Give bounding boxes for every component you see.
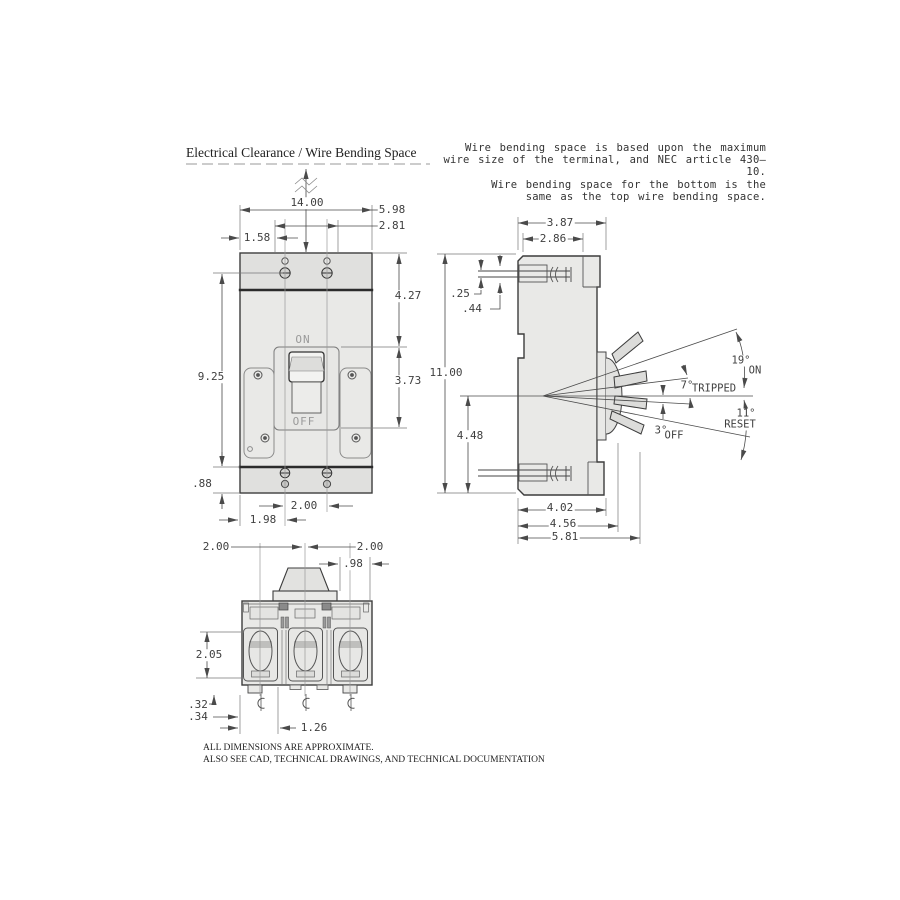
handle-on	[612, 332, 643, 363]
right-wing	[340, 368, 371, 458]
breaker-dimension-drawing: Electrical Clearance / Wire Bending Spac…	[0, 0, 900, 900]
bottom-view-body	[242, 568, 372, 693]
centerline-icon	[348, 694, 355, 711]
pole-terminal-windows	[244, 628, 368, 684]
dim-foot-height: .32	[187, 699, 209, 711]
dim-mounting-height: 9.25	[197, 371, 226, 383]
dim-clearance-top: 14.00	[289, 197, 324, 209]
dim-trim-depth: 4.56	[549, 518, 578, 530]
dim-overall-depth: 5.81	[551, 531, 580, 543]
dim-terminal-opening: .44	[461, 303, 483, 315]
angle-tripped-label: TRIPPED	[691, 383, 737, 394]
page-title: Electrical Clearance / Wire Bending Spac…	[186, 145, 416, 161]
dim-top-depth: 3.87	[546, 217, 575, 229]
dim-terminal-plate-gap: .25	[449, 288, 471, 300]
wire-bending-note: Wire bending space is based upon the max…	[425, 142, 766, 203]
dim-pole-spacing: 2.00	[290, 500, 319, 512]
dim-terminal-depth: 2.86	[539, 233, 568, 245]
dim-edge-to-pole: 1.98	[249, 514, 278, 526]
technical-drawing-linework	[0, 0, 900, 900]
note-line: same as the top wire bending space.	[425, 191, 766, 203]
note-line: wire size of the terminal, and NEC artic…	[425, 154, 766, 178]
footer-note-1: ALL DIMENSIONS ARE APPROXIMATE.	[203, 743, 374, 753]
centerline-icon	[303, 694, 310, 711]
dim-handle-center-to-base: 4.48	[456, 430, 485, 442]
dim-pole-spacing-left: 2.00	[202, 541, 231, 553]
note-line: Wire bending space for the bottom is the	[425, 179, 766, 191]
dim-handle-offset: .98	[342, 558, 364, 570]
note-line: Wire bending space is based upon the max…	[425, 142, 766, 154]
footer-note-2: ALSO SEE CAD, TECHNICAL DRAWINGS, AND TE…	[203, 755, 545, 765]
dim-base-strip: .88	[191, 478, 213, 490]
side-view-body	[460, 256, 753, 495]
dim-handle-span: 3.73	[394, 375, 423, 387]
dim-pole-spacing-right: 2.00	[356, 541, 385, 553]
dim-edge-to-lug: 1.26	[300, 722, 329, 734]
angle-reset-label: RESET	[723, 419, 757, 430]
mounting-feet	[248, 685, 357, 693]
off-label: OFF	[292, 416, 317, 428]
front-view-body	[240, 253, 372, 493]
dim-overall-width: 5.98	[378, 204, 407, 216]
toggle-handle	[289, 352, 324, 413]
left-wing	[244, 368, 274, 458]
dim-recess-width: 2.81	[378, 220, 407, 232]
dim-top-to-handle: 4.27	[394, 290, 423, 302]
centerline-icon	[258, 694, 265, 711]
dim-foot-inset: .34	[187, 711, 209, 723]
pole-window	[244, 628, 278, 681]
angle-off-label: OFF	[664, 430, 685, 441]
dim-lug-depth: 2.05	[195, 649, 224, 661]
bottom-handle	[279, 568, 329, 591]
pole-window	[289, 628, 323, 681]
on-label: ON	[294, 334, 311, 346]
dim-overall-height: 11.00	[428, 367, 463, 379]
dim-edge-to-recess: 1.58	[243, 232, 272, 244]
pole-window	[334, 628, 368, 681]
dim-body-depth: 4.02	[546, 502, 575, 514]
angle-on-label: ON	[748, 365, 763, 376]
